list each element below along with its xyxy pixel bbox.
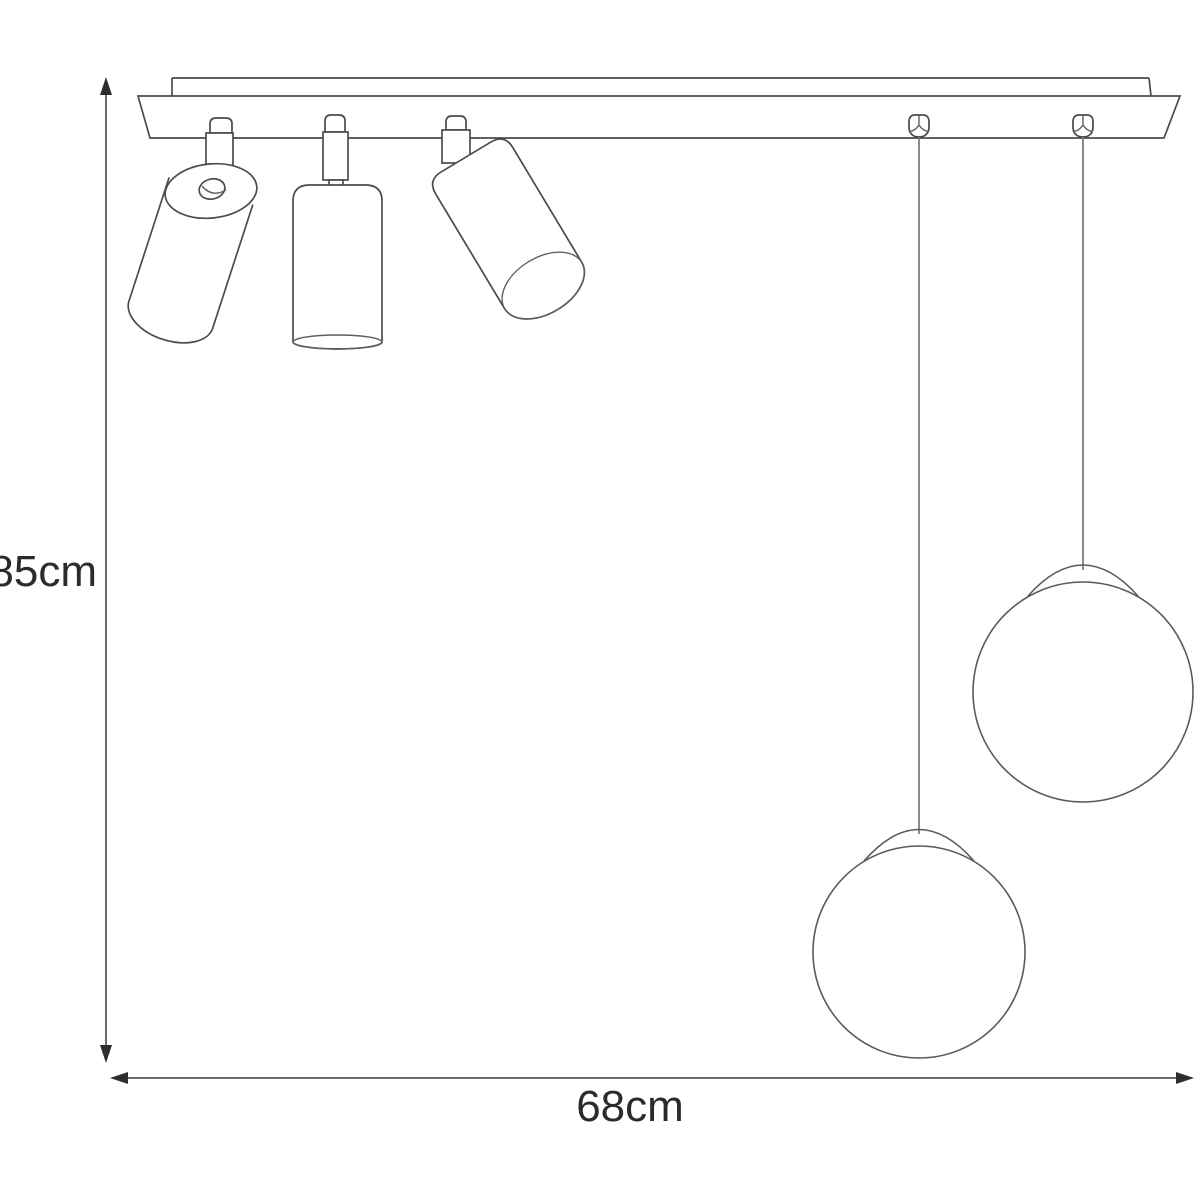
spotlight-right-stem bbox=[442, 116, 470, 163]
globe-sphere bbox=[813, 846, 1025, 1058]
width-dimension: 68cm bbox=[110, 1072, 1194, 1131]
cable-gland-left bbox=[909, 115, 929, 137]
cylinder-body bbox=[293, 185, 382, 349]
arrow-left-icon bbox=[110, 1072, 128, 1084]
spotlight-middle-stem bbox=[323, 115, 348, 187]
fixture-drawing: 85cm 68cm bbox=[0, 0, 1200, 1200]
stem-body bbox=[323, 132, 348, 180]
arrow-down-icon bbox=[100, 1045, 112, 1063]
height-dimension: 85cm bbox=[0, 77, 112, 1063]
spotlight-middle-cylinder bbox=[293, 185, 382, 349]
globe-sphere bbox=[973, 582, 1193, 802]
cable-gland-right bbox=[1073, 115, 1093, 137]
stem-cap bbox=[446, 116, 466, 130]
stem-cap bbox=[210, 118, 232, 133]
ceiling-mounting-bar bbox=[138, 78, 1180, 138]
bar-front-face bbox=[138, 96, 1180, 138]
globe-pendant-upper bbox=[973, 565, 1193, 802]
spotlight-left-cylinder bbox=[121, 159, 260, 353]
arrow-right-icon bbox=[1176, 1072, 1194, 1084]
bar-top-plate bbox=[172, 78, 1151, 96]
globe-pendant-lower bbox=[813, 830, 1025, 1059]
width-label: 68cm bbox=[576, 1082, 684, 1131]
stem-cap bbox=[325, 115, 345, 132]
height-label: 85cm bbox=[0, 547, 97, 596]
lamp-dimension-diagram: 85cm 68cm bbox=[0, 0, 1200, 1200]
arrow-up-icon bbox=[100, 77, 112, 95]
